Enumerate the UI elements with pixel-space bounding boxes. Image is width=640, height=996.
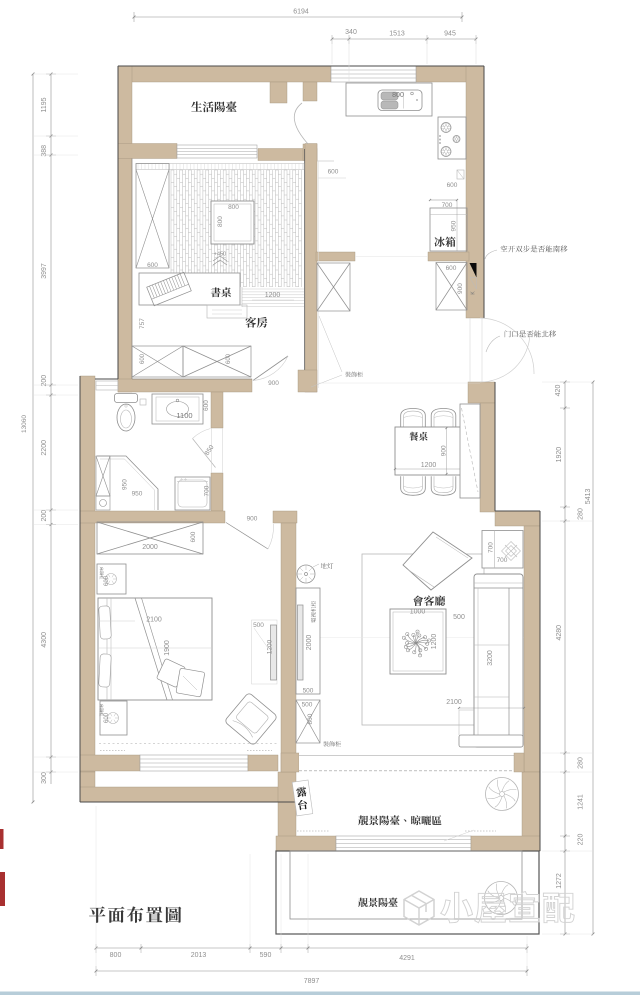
svg-text:200: 200: [41, 510, 48, 522]
svg-text:1195: 1195: [41, 97, 48, 112]
svg-text:2000: 2000: [306, 635, 313, 651]
svg-text:2100: 2100: [146, 617, 162, 624]
svg-text:13060: 13060: [21, 415, 28, 433]
svg-text:600: 600: [446, 265, 457, 272]
svg-text:2000: 2000: [142, 544, 158, 551]
svg-text:1200: 1200: [431, 634, 438, 650]
svg-text:800: 800: [228, 204, 239, 211]
svg-text:950: 950: [132, 490, 143, 497]
svg-text:340: 340: [345, 29, 357, 36]
svg-text:200: 200: [41, 375, 48, 387]
svg-text:900: 900: [268, 380, 279, 387]
svg-text:4300: 4300: [41, 632, 48, 648]
svg-text:500: 500: [303, 687, 314, 694]
svg-text:6194: 6194: [293, 9, 309, 16]
svg-text:+450: +450: [214, 252, 226, 258]
svg-text:4280: 4280: [556, 625, 563, 641]
svg-text:500: 500: [253, 622, 264, 629]
svg-text:600: 600: [147, 262, 158, 269]
svg-text:1513: 1513: [389, 31, 405, 38]
svg-text:420: 420: [555, 385, 562, 397]
svg-text:1200: 1200: [265, 292, 281, 299]
svg-text:700: 700: [203, 485, 210, 496]
svg-text:1272: 1272: [556, 873, 563, 889]
svg-text:700: 700: [442, 202, 453, 209]
svg-text:600: 600: [190, 531, 197, 542]
svg-text:950: 950: [450, 220, 457, 231]
svg-text:600: 600: [226, 353, 232, 364]
svg-text:590: 590: [260, 952, 272, 959]
svg-text:5413: 5413: [585, 489, 592, 505]
svg-text:1920: 1920: [556, 447, 563, 463]
svg-text:600: 600: [328, 168, 339, 175]
svg-text:700: 700: [487, 542, 494, 553]
svg-text:900: 900: [457, 283, 464, 294]
svg-text:300: 300: [41, 772, 48, 784]
svg-text:3997: 3997: [41, 263, 48, 279]
svg-text:500: 500: [302, 701, 313, 708]
svg-text:900: 900: [440, 445, 447, 456]
svg-text:600: 600: [104, 712, 110, 723]
svg-text:280: 280: [578, 757, 585, 769]
svg-text:950: 950: [121, 479, 128, 490]
svg-text:2013: 2013: [191, 952, 207, 959]
svg-text:500: 500: [453, 614, 465, 621]
svg-text:800: 800: [392, 92, 404, 99]
svg-text:800: 800: [307, 713, 314, 724]
svg-text:1000: 1000: [410, 609, 426, 616]
svg-text:1200: 1200: [421, 462, 437, 469]
svg-text:700: 700: [497, 557, 508, 564]
svg-text:600: 600: [140, 353, 146, 364]
svg-text:220: 220: [578, 834, 585, 846]
svg-text:1241: 1241: [578, 794, 585, 810]
svg-text:900: 900: [247, 515, 258, 522]
svg-text:2100: 2100: [446, 699, 462, 706]
svg-text:945: 945: [444, 31, 456, 38]
svg-text:4291: 4291: [399, 955, 415, 962]
svg-text:600: 600: [447, 182, 458, 189]
svg-text:3200: 3200: [487, 650, 494, 666]
svg-text:600: 600: [203, 400, 210, 411]
svg-text:600: 600: [104, 575, 110, 586]
svg-text:1100: 1100: [176, 411, 192, 420]
svg-text:1900: 1900: [164, 640, 171, 656]
svg-text:2200: 2200: [41, 440, 48, 456]
svg-text:800: 800: [217, 216, 224, 227]
svg-text:280: 280: [578, 508, 585, 520]
svg-text:7897: 7897: [304, 978, 320, 985]
svg-text:800: 800: [110, 952, 122, 959]
svg-text:757: 757: [139, 318, 146, 329]
